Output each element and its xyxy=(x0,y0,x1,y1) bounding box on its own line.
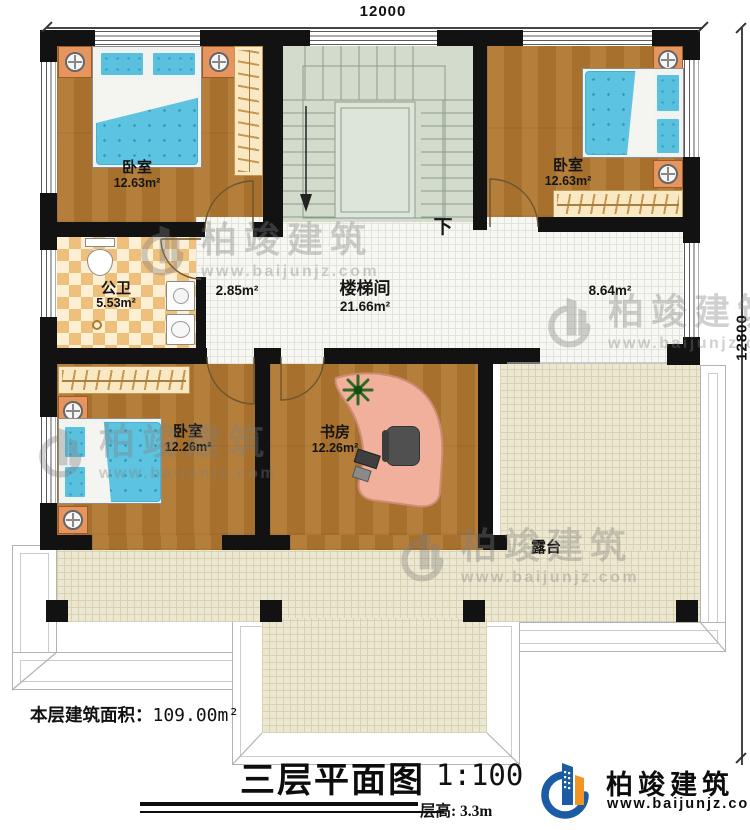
room-area-stairwell: 21.66m² xyxy=(310,300,420,315)
dimension-line-right xyxy=(741,28,743,765)
room-area-bedroom-bl: 12.26m² xyxy=(138,441,238,455)
room-area-bedroom-tl: 12.63m² xyxy=(87,177,187,191)
title-underline-thick xyxy=(140,802,418,806)
room-label-bedroom-bl: 卧室 xyxy=(138,424,238,441)
dimension-top: 12000 xyxy=(333,3,433,20)
area-hall-left: 2.85m² xyxy=(182,284,292,299)
room-label-bedroom-tr: 卧室 xyxy=(518,158,618,175)
room-label-study: 书房 xyxy=(285,425,385,442)
floor-height-note: 层高: 3.3m xyxy=(420,799,492,821)
floor-area-label: 本层建筑面积： xyxy=(30,705,153,725)
room-label-terrace: 露台 xyxy=(496,540,596,557)
stairs-down-label: 下 xyxy=(430,218,456,239)
room-label-bedroom-tl: 卧室 xyxy=(87,160,187,177)
dimension-line-top xyxy=(47,27,703,29)
room-area-bedroom-tr: 12.63m² xyxy=(518,175,618,189)
title-underline-thin xyxy=(140,811,444,813)
company-logo-icon xyxy=(538,757,598,821)
room-label-stairwell: 楼梯间 xyxy=(310,280,420,299)
drawing-scale: 1:100 xyxy=(436,758,523,792)
floor-area-value: 109.00m² xyxy=(153,705,240,726)
area-hall-right: 8.64m² xyxy=(555,284,665,299)
room-area-study: 12.26m² xyxy=(285,442,385,456)
dimension-right: 12800 xyxy=(734,308,750,368)
floor-plan: 卧室 12.63m² 公卫 5.53m² 2.85m² 楼梯间 21.66m² … xyxy=(0,0,750,830)
company-website: www.baijunjz.com xyxy=(607,796,750,812)
room-area-bathroom: 5.53m² xyxy=(66,297,166,311)
floor-area-note: 本层建筑面积：109.00m² xyxy=(30,702,239,727)
page-title: 三层平面图 xyxy=(240,752,425,803)
